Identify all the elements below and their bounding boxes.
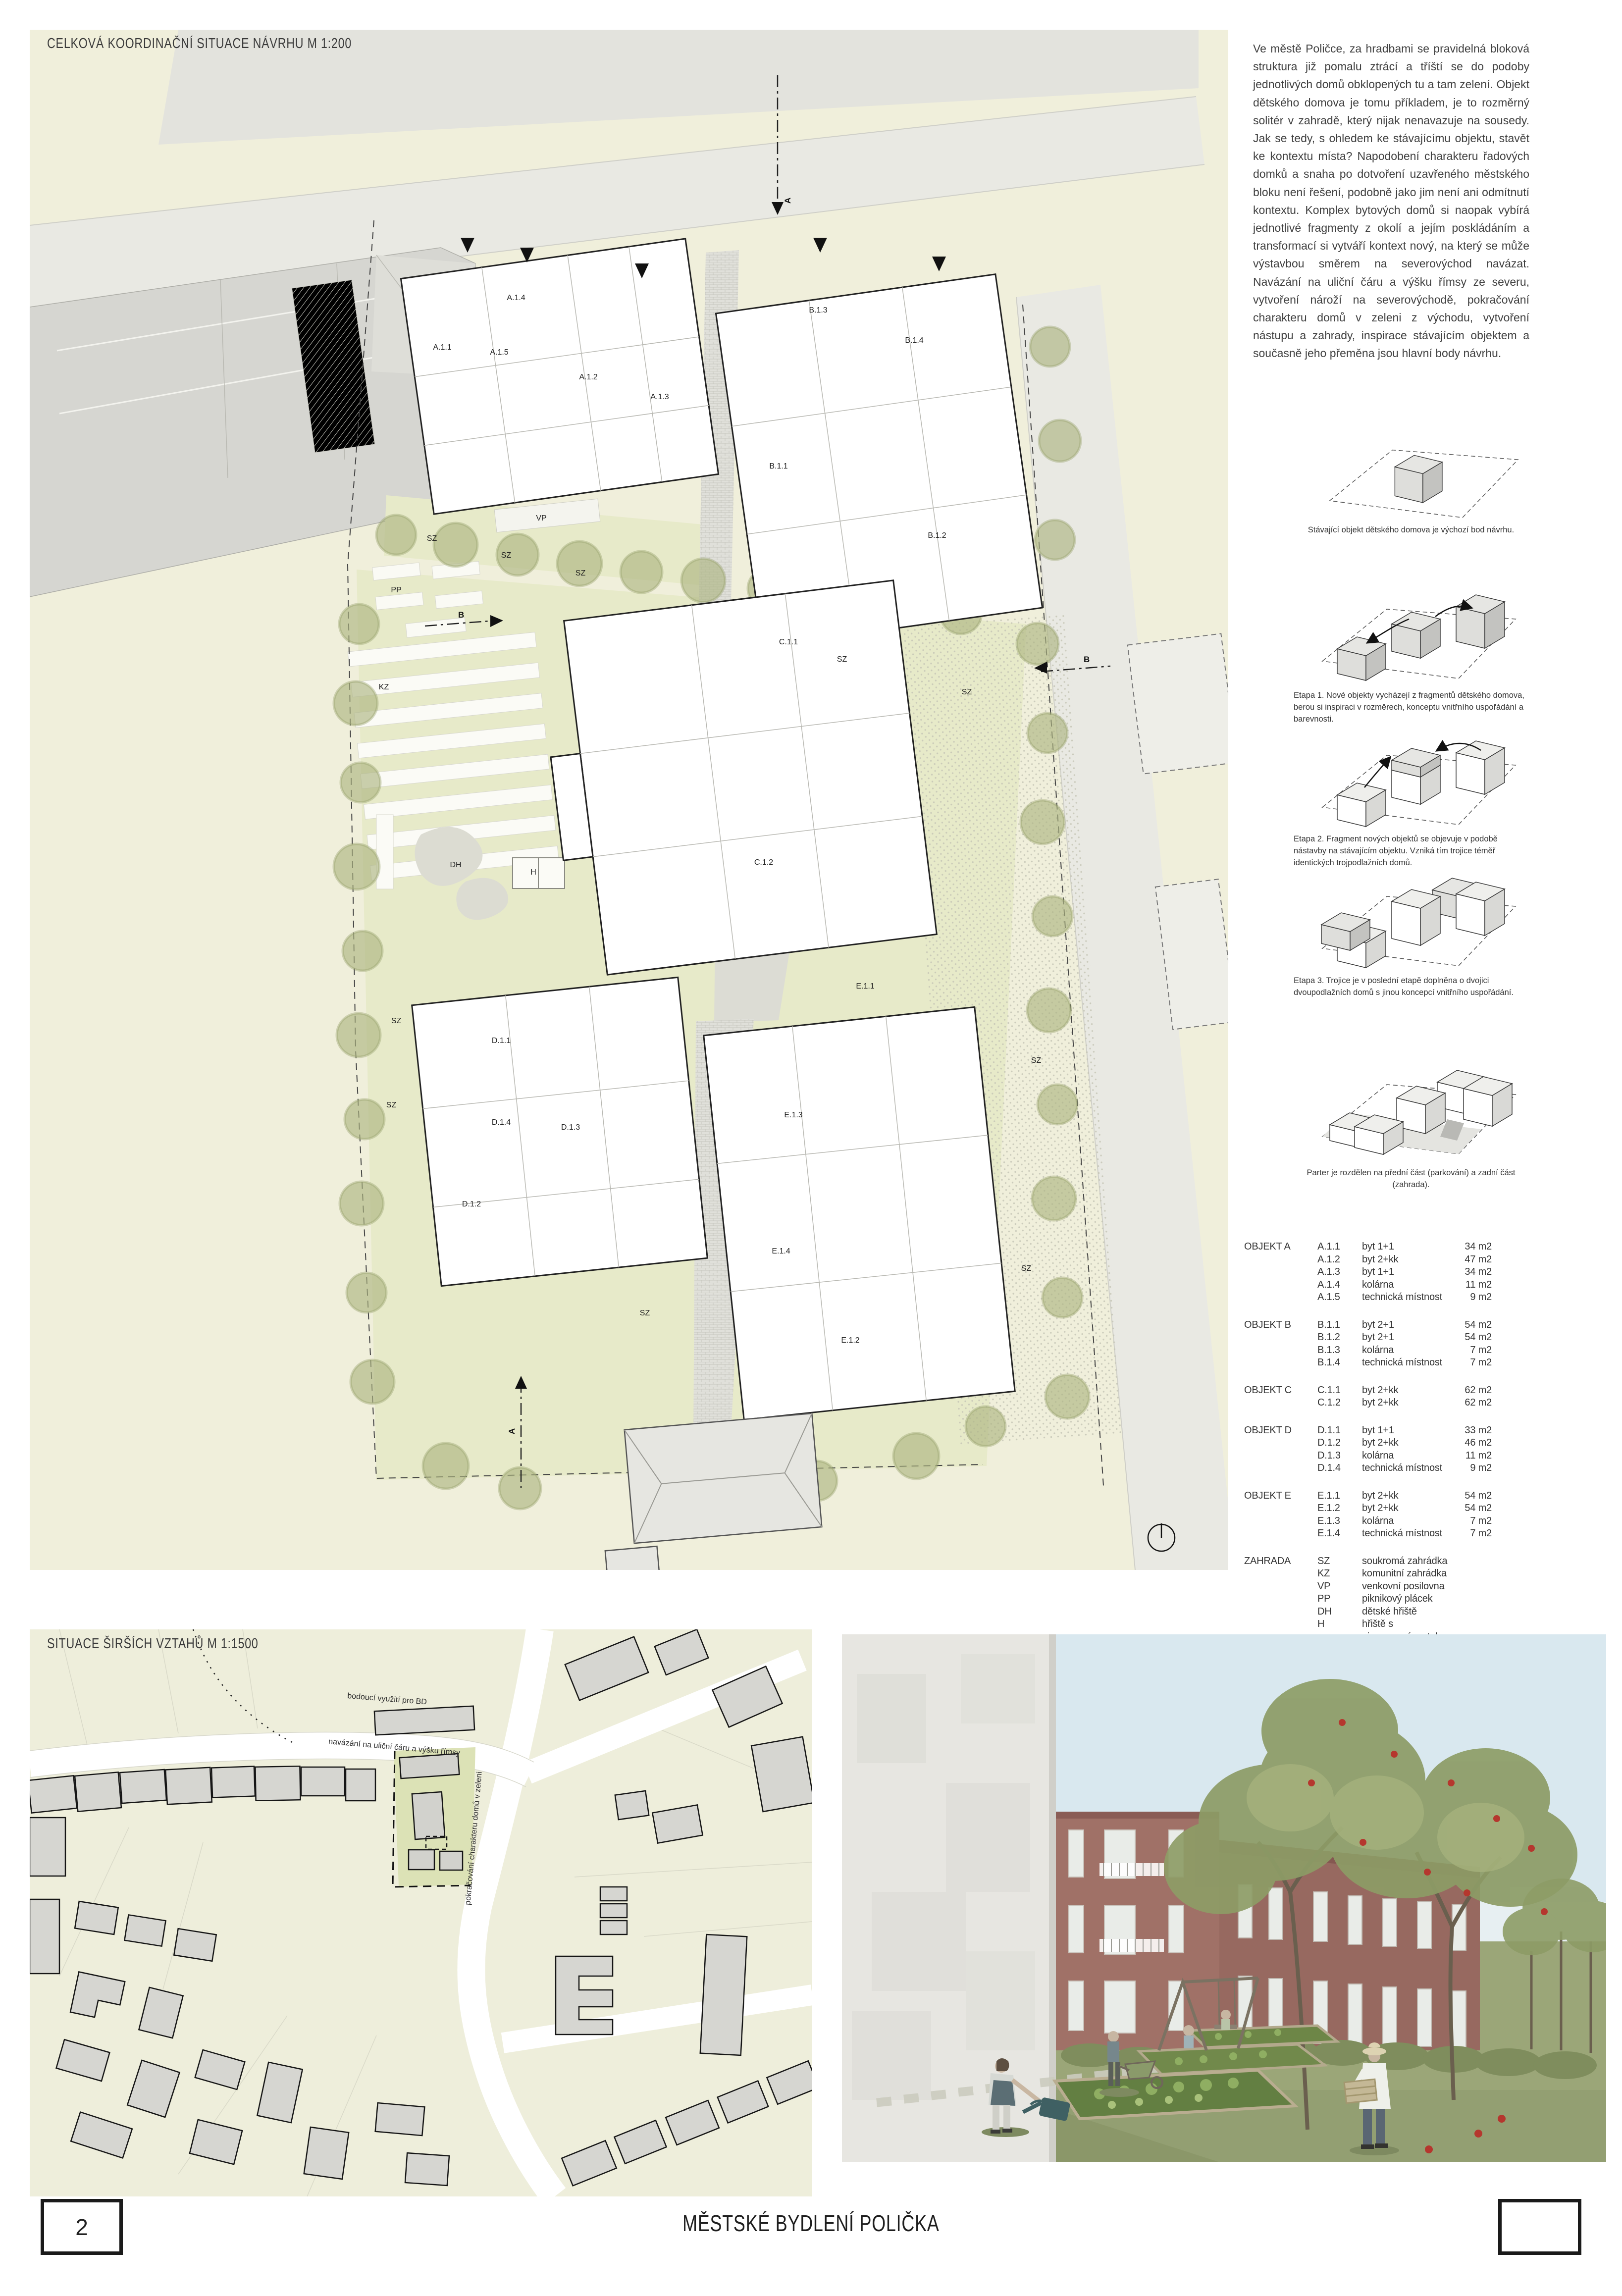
legend-name: byt 2+kk — [1362, 1397, 1452, 1409]
legend-code: D.1.2 — [1317, 1437, 1362, 1450]
diagram-caption-4: Parter je rozdělen na přední část (parko… — [1294, 1167, 1528, 1191]
legend-area: 7 m2 — [1452, 1527, 1492, 1540]
legend-row: B.1.4 technická místnost 7 m2 — [1244, 1357, 1492, 1369]
legend-name: byt 1+1 — [1362, 1241, 1452, 1253]
legend-area: 46 m2 — [1452, 1437, 1492, 1450]
legend-name: byt 2+kk — [1362, 1384, 1452, 1397]
legend-row: KZ komunitní zahrádka — [1244, 1567, 1492, 1580]
legend-name: technická místnost — [1362, 1357, 1452, 1369]
legend-group: OBJEKT E — [1244, 1490, 1317, 1503]
building-e-footprint — [704, 1007, 1015, 1419]
legend-row: OBJEKT E E.1.1 byt 2+kk 54 m2 — [1244, 1490, 1492, 1503]
site-plan-title: CELKOVÁ KOORDINAČNÍ SITUACE NÁVRHU M 1:2… — [47, 36, 428, 52]
legend-name: kolárna — [1362, 1344, 1452, 1357]
legend-row: D.1.4 technická místnost 9 m2 — [1244, 1462, 1492, 1475]
legend-area: 7 m2 — [1452, 1515, 1492, 1528]
concept-description: Ve městě Poličce, za hradbami se pravide… — [1253, 40, 1529, 363]
section-letter-b-right: B — [1084, 655, 1090, 665]
legend-name: byt 2+kk — [1362, 1490, 1452, 1503]
legend-area: 11 m2 — [1452, 1279, 1492, 1292]
legend-area: 54 m2 — [1452, 1502, 1492, 1515]
legend-table: OBJEKT A A.1.1 byt 1+1 34 m2 A.1.2 byt 2… — [1244, 1241, 1492, 1631]
legend-group: OBJEKT C — [1244, 1384, 1317, 1397]
legend-code: D.1.3 — [1317, 1450, 1362, 1462]
section-letter-a-top: A — [783, 198, 793, 204]
diagram-parter — [1308, 1052, 1525, 1161]
legend-area: 7 m2 — [1452, 1357, 1492, 1369]
diagram-caption-1: Etapa 1. Nové objekty vycházejí z fragme… — [1294, 689, 1528, 725]
legend-area: 54 m2 — [1452, 1319, 1492, 1332]
legend-code: E.1.1 — [1317, 1490, 1362, 1503]
legend-name: technická místnost — [1362, 1462, 1452, 1475]
legend-code: D.1.1 — [1317, 1424, 1362, 1437]
legend-row: B.1.2 byt 2+1 54 m2 — [1244, 1331, 1492, 1344]
legend-name: komunitní zahrádka — [1362, 1567, 1452, 1580]
legend-name: kolárna — [1362, 1279, 1452, 1292]
section-letter-b-left: B — [458, 610, 464, 620]
diagram-caption-0: Stávající objekt dětského domova je vých… — [1294, 524, 1528, 536]
wider-map-title: SITUACE ŠIRŠÍCH VZTAHŮ M 1:1500 — [47, 1636, 311, 1652]
legend-code: B.1.1 — [1317, 1319, 1362, 1332]
project-title: MĚSTSKÉ BYDLENÍ POLIČKA — [0, 2210, 1622, 2237]
footer-empty-box — [1498, 2199, 1581, 2255]
legend-row: DH dětské hřiště — [1244, 1606, 1492, 1618]
legend-area: 9 m2 — [1452, 1462, 1492, 1475]
legend-area: 11 m2 — [1452, 1450, 1492, 1462]
diagram-caption-3: Etapa 3. Trojice je v poslední etapě dop… — [1294, 975, 1528, 998]
site-plan-drawing — [30, 30, 1228, 1570]
legend-area: 62 m2 — [1452, 1397, 1492, 1409]
legend-row: A.1.3 byt 1+1 34 m2 — [1244, 1266, 1492, 1279]
legend-row: ZAHRADA SZ soukromá zahrádka — [1244, 1555, 1492, 1568]
legend-row: OBJEKT B B.1.1 byt 2+1 54 m2 — [1244, 1319, 1492, 1332]
legend-group: OBJEKT D — [1244, 1424, 1317, 1437]
legend-code: E.1.4 — [1317, 1527, 1362, 1540]
wider-map-drawing — [30, 1629, 812, 2196]
legend-group: ZAHRADA — [1244, 1555, 1317, 1568]
legend-row: A.1.2 byt 2+kk 47 m2 — [1244, 1253, 1492, 1266]
existing-building-east-1 — [1128, 633, 1228, 774]
diagram-etapa-3 — [1308, 864, 1525, 968]
legend-area: 54 m2 — [1452, 1331, 1492, 1344]
legend-name: venkovní posilovna — [1362, 1580, 1452, 1593]
legend-row: A.1.5 technická místnost 9 m2 — [1244, 1291, 1492, 1304]
legend-name: byt 2+kk — [1362, 1437, 1452, 1450]
diagram-caption-2: Etapa 2. Fragment nových objektů se obje… — [1294, 833, 1528, 869]
legend-name: dětské hřiště — [1362, 1606, 1452, 1618]
legend-row: PP piknikový plácek — [1244, 1593, 1492, 1606]
garden-visualisation — [842, 1634, 1606, 2162]
legend-code: A.1.4 — [1317, 1279, 1362, 1292]
legend-area: 34 m2 — [1452, 1241, 1492, 1253]
legend-row: H hřiště s pinpongovým stolem — [1244, 1618, 1492, 1631]
legend-area: 7 m2 — [1452, 1344, 1492, 1357]
legend-code: SZ — [1317, 1555, 1362, 1568]
legend-code: DH — [1317, 1606, 1362, 1618]
legend-code: B.1.3 — [1317, 1344, 1362, 1357]
legend-code: A.1.3 — [1317, 1266, 1362, 1279]
legend-name: byt 2+1 — [1362, 1331, 1452, 1344]
legend-name: technická místnost — [1362, 1527, 1452, 1540]
legend-code: A.1.5 — [1317, 1291, 1362, 1304]
poster-page: CELKOVÁ KOORDINAČNÍ SITUACE NÁVRHU M 1:2… — [0, 0, 1622, 2296]
legend-code: D.1.4 — [1317, 1462, 1362, 1475]
legend-name: kolárna — [1362, 1515, 1452, 1528]
diagram-etapa-2 — [1308, 723, 1525, 830]
diagram-etapa-1 — [1308, 577, 1525, 683]
legend-code: C.1.1 — [1317, 1384, 1362, 1397]
legend-row: B.1.3 kolárna 7 m2 — [1244, 1344, 1492, 1357]
legend-name: piknikový plácek — [1362, 1593, 1452, 1606]
legend-area: 54 m2 — [1452, 1490, 1492, 1503]
legend-row: C.1.2 byt 2+kk 62 m2 — [1244, 1397, 1492, 1409]
diagram-existing-object — [1312, 423, 1530, 520]
legend-code: KZ — [1317, 1567, 1362, 1580]
legend-row: OBJEKT C C.1.1 byt 2+kk 62 m2 — [1244, 1384, 1492, 1397]
legend-code: PP — [1317, 1593, 1362, 1606]
legend-name: soukromá zahrádka — [1362, 1555, 1452, 1568]
legend-row: OBJEKT D D.1.1 byt 1+1 33 m2 — [1244, 1424, 1492, 1437]
legend-name: byt 2+kk — [1362, 1253, 1452, 1266]
section-letter-a-bottom: A — [507, 1428, 517, 1434]
legend-group: OBJEKT B — [1244, 1319, 1317, 1332]
legend-name: byt 1+1 — [1362, 1424, 1452, 1437]
legend-name: byt 1+1 — [1362, 1266, 1452, 1279]
building-a-footprint — [401, 239, 718, 514]
legend-code: E.1.3 — [1317, 1515, 1362, 1528]
legend-row: OBJEKT A A.1.1 byt 1+1 34 m2 — [1244, 1241, 1492, 1253]
legend-row: VP venkovní posilovna — [1244, 1580, 1492, 1593]
legend-code: C.1.2 — [1317, 1397, 1362, 1409]
building-d-footprint — [412, 977, 708, 1286]
legend-code: B.1.2 — [1317, 1331, 1362, 1344]
legend-name: byt 2+kk — [1362, 1502, 1452, 1515]
legend-name: kolárna — [1362, 1450, 1452, 1462]
legend-code: E.1.2 — [1317, 1502, 1362, 1515]
legend-row: E.1.4 technická místnost 7 m2 — [1244, 1527, 1492, 1540]
legend-area: 47 m2 — [1452, 1253, 1492, 1266]
legend-code: H — [1317, 1618, 1362, 1631]
legend-group: OBJEKT A — [1244, 1241, 1317, 1253]
legend-name: byt 2+1 — [1362, 1319, 1452, 1332]
map-bd-building — [374, 1706, 474, 1735]
legend-area: 9 m2 — [1452, 1291, 1492, 1304]
legend-row: E.1.3 kolárna 7 m2 — [1244, 1515, 1492, 1528]
legend-row: A.1.4 kolárna 11 m2 — [1244, 1279, 1492, 1292]
legend-row: D.1.2 byt 2+kk 46 m2 — [1244, 1437, 1492, 1450]
legend-area: 62 m2 — [1452, 1384, 1492, 1397]
legend-row: E.1.2 byt 2+kk 54 m2 — [1244, 1502, 1492, 1515]
legend-row: D.1.3 kolárna 11 m2 — [1244, 1450, 1492, 1462]
legend-code: VP — [1317, 1580, 1362, 1593]
legend-area: 34 m2 — [1452, 1266, 1492, 1279]
legend-name: technická místnost — [1362, 1291, 1452, 1304]
legend-area: 33 m2 — [1452, 1424, 1492, 1437]
legend-code: A.1.2 — [1317, 1253, 1362, 1266]
legend-code: A.1.1 — [1317, 1241, 1362, 1253]
legend-code: B.1.4 — [1317, 1357, 1362, 1369]
